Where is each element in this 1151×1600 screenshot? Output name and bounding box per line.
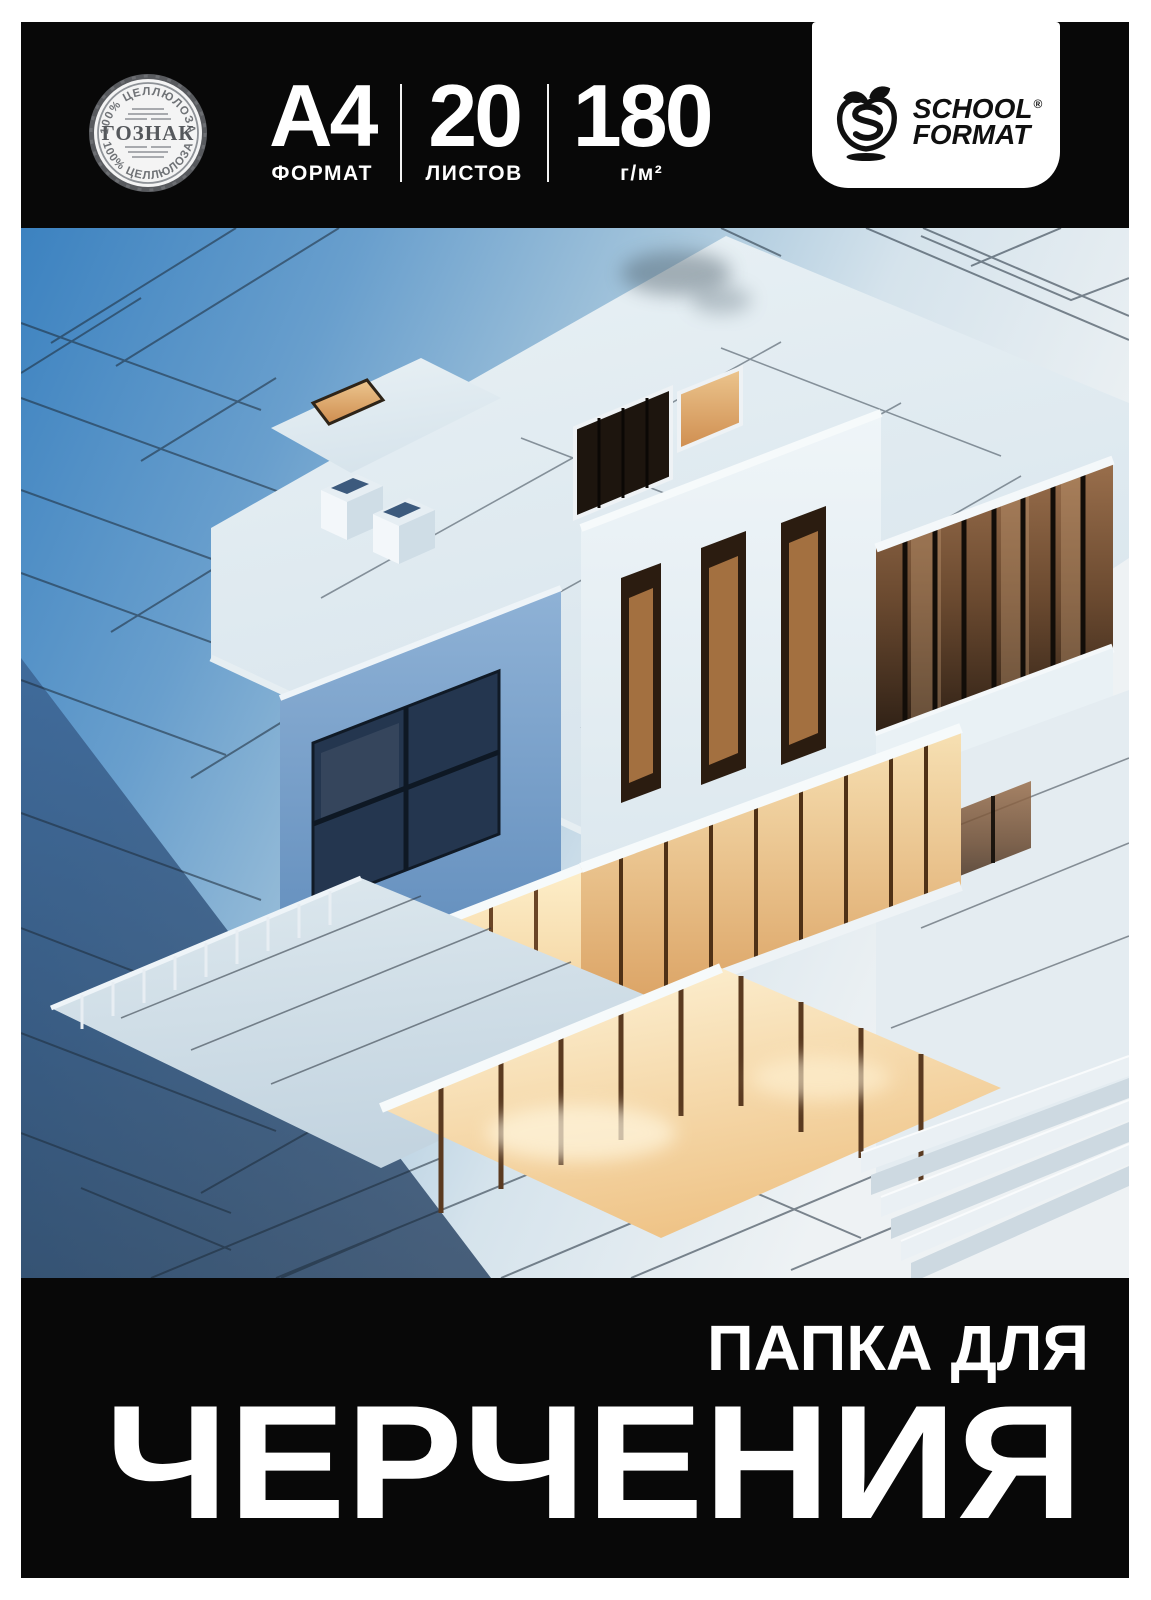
cover-title: ЧЕРЧЕНИЯ (105, 1372, 1083, 1553)
spec-sheets: 20 ЛИСТОВ (426, 76, 523, 186)
registered-mark: ® (1033, 97, 1042, 111)
specs-row: A4 ФОРМАТ 20 ЛИСТОВ 180 г/м² (269, 76, 711, 186)
spec-divider (400, 84, 402, 182)
header-band: 100% ЦЕЛЛЮЛОЗА 100% ЦЕЛЛЮЛОЗА ГОЗНАК (21, 22, 1129, 228)
product-cover-page: 100% ЦЕЛЛЮЛОЗА 100% ЦЕЛЛЮЛОЗА ГОЗНАК (0, 0, 1151, 1600)
brand-line1: SCHOOL (913, 93, 1033, 124)
seal-center-text: ГОЗНАК (102, 121, 195, 145)
apple-s-icon (831, 80, 905, 164)
spec-divider (547, 84, 549, 182)
goznak-seal: 100% ЦЕЛЛЮЛОЗА 100% ЦЕЛЛЮЛОЗА ГОЗНАК (87, 72, 209, 194)
spec-format: A4 ФОРМАТ (269, 76, 376, 186)
spec-format-label: ФОРМАТ (272, 162, 373, 186)
brand-line2: FORMAT (913, 122, 1042, 148)
spec-format-value: A4 (269, 76, 376, 157)
title-block: ПАПКА ДЛЯ ЧЕРЧЕНИЯ (21, 1278, 1129, 1578)
spec-density-value: 180 (573, 76, 711, 157)
school-format-logo-box: SCHOOL® FORMAT (812, 22, 1060, 188)
spec-density: 180 г/м² (573, 76, 711, 186)
spec-sheets-label: ЛИСТОВ (426, 162, 523, 186)
brand-wordmark: SCHOOL® FORMAT (913, 96, 1042, 148)
spec-density-label: г/м² (620, 162, 663, 186)
footer-band: ПАПКА ДЛЯ ЧЕРЧЕНИЯ (21, 1278, 1129, 1578)
spec-sheets-value: 20 (428, 76, 520, 157)
architecture-render-illustration (21, 228, 1129, 1278)
folder-cover: 100% ЦЕЛЛЮЛОЗА 100% ЦЕЛЛЮЛОЗА ГОЗНАК (21, 22, 1129, 1578)
